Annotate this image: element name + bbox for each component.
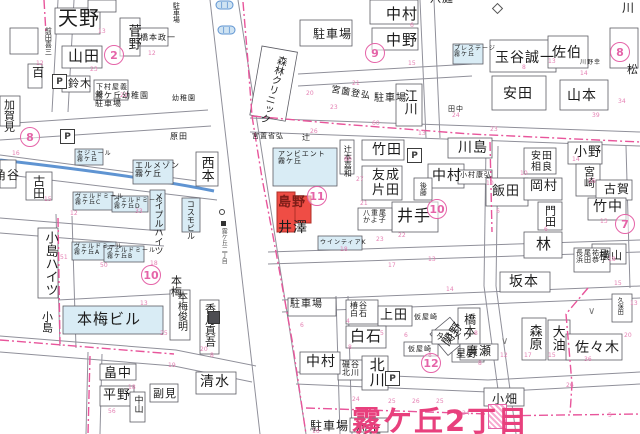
street-edge: [298, 76, 472, 86]
lot-number: 26: [310, 128, 318, 135]
parking-icon: P: [60, 129, 75, 144]
lot-number: 24: [452, 112, 460, 119]
map-label: 廣瀬: [466, 345, 492, 358]
parking-icon: P: [385, 371, 400, 386]
map-label: 小村康弘: [460, 172, 492, 179]
map-label: 安田 相良: [531, 152, 553, 173]
map-label: 後藤: [419, 182, 426, 196]
lot-number: 20: [306, 90, 314, 97]
lot-number: 15: [408, 60, 416, 67]
lot-number: 4: [346, 318, 350, 325]
map-label: 井澤: [278, 221, 308, 236]
parking-icon: P: [407, 148, 422, 163]
map-label: 安田: [503, 87, 533, 102]
footbridge-icon: [218, 26, 235, 34]
lot-number: 18: [150, 260, 158, 267]
circled-block-number: 10: [427, 199, 447, 219]
lot-number: 19: [168, 362, 176, 369]
map-label: 門田: [544, 205, 556, 227]
building: [10, 28, 38, 54]
lot-number: 17: [524, 352, 532, 359]
circled-block-number: 8: [610, 42, 630, 62]
road-square-icon: [221, 221, 226, 226]
vacant-lot-mark: ∨: [501, 336, 508, 347]
lot-number: 6: [300, 322, 304, 329]
map-label: 長尾祐司 浜田恭子: [576, 250, 608, 265]
footbridge-icons: [216, 1, 235, 34]
lot-number: 6: [544, 226, 548, 233]
circled-block-number: 9: [365, 43, 385, 63]
lot-number: 10: [486, 180, 494, 187]
map-label: 大油: [550, 325, 564, 351]
map-label: 中村: [306, 355, 336, 370]
map-label: 山本: [567, 89, 597, 104]
map-label: 角谷: [0, 169, 20, 182]
map-label: 江川: [402, 89, 416, 115]
map-label: 西本: [199, 156, 213, 182]
lot-number: 5: [608, 412, 612, 419]
circled-block-number: 11: [307, 186, 327, 206]
map-label: メイプルハイツ: [152, 192, 161, 255]
map-label: 佐々木: [575, 341, 620, 356]
lot-number: 34: [618, 98, 626, 105]
lot-number: 16: [12, 150, 20, 157]
map-label: 八重尾 かよ子: [363, 210, 387, 225]
map-label: プレステージ 霧ケ丘: [454, 46, 496, 59]
circled-block-number: 7: [615, 214, 635, 234]
lot-number: 20: [624, 332, 632, 339]
map-label: 竹中: [593, 200, 623, 215]
map-label: 原田: [170, 133, 188, 141]
map-label: 橋本政一: [140, 34, 176, 42]
lot-number: 8: [210, 352, 214, 359]
map-label: 清水: [200, 375, 230, 390]
map-label: 香月真吾: [204, 303, 216, 347]
map-label: 古田: [32, 175, 45, 199]
map-label: 加賀見: [3, 99, 15, 132]
map-label: 霧ケ丘二丁目: [220, 228, 226, 264]
map-label: 久保田: [616, 297, 622, 315]
map-label: 駐車場: [313, 28, 352, 41]
lot-number: 14: [572, 156, 580, 163]
street-edge: [210, 0, 260, 434]
street-edge: [0, 218, 162, 231]
map-label: 岡村: [530, 180, 558, 194]
lot-number: 14: [580, 70, 588, 77]
map-label: 中野: [386, 33, 418, 49]
lot-number: 22: [398, 232, 406, 239]
lot-number: 13: [630, 300, 638, 307]
lot-number: 5: [380, 330, 384, 337]
map-label: 辻: [302, 134, 311, 142]
lot-number: 8: [428, 352, 432, 359]
lot-number: 8: [474, 330, 478, 337]
circled-block-number: 2: [104, 45, 124, 65]
map-label: 井手: [397, 208, 431, 225]
lot-number: 60: [372, 120, 380, 127]
lot-number: 23: [490, 126, 498, 133]
lot-number: 51: [60, 254, 68, 261]
map-label: ヴェルドミール 霧ケ丘B: [107, 248, 156, 261]
lot-number: 13: [418, 130, 426, 137]
lot-number: 26: [566, 382, 574, 389]
lot-number: 6: [496, 208, 500, 215]
map-label: 百: [31, 66, 44, 78]
lot-number: 22: [120, 92, 128, 99]
lot-number: 21: [360, 200, 368, 207]
map-label: 本梅俊明: [175, 291, 186, 331]
map-label: コスモビル: [186, 200, 194, 240]
lot-number: 13: [428, 256, 436, 263]
diamond-icon: [493, 4, 503, 14]
map-label: 飯田: [492, 185, 520, 199]
vacant-lot-mark: ∨: [588, 306, 595, 317]
highlighted-building-label[interactable]: 島野: [278, 196, 306, 210]
lot-number: 6: [410, 22, 414, 29]
map-label: 川: [622, 2, 635, 15]
map-label: 駐車場: [172, 2, 179, 23]
street-edge: [0, 110, 208, 124]
map-label: 古賀: [604, 183, 630, 196]
map-label: 佐伯: [552, 46, 582, 61]
lot-number: 12: [36, 60, 44, 67]
lot-number: 18: [340, 246, 348, 253]
lot-number: 6: [404, 332, 408, 339]
circled-block-number: 10: [141, 265, 161, 285]
lot-number: 16: [588, 178, 596, 185]
zenrin-map-canvas[interactable]: 天野菅野山田鈴木百前田喜三下村屋義 雄橋本政一霧ケ丘幼稚園 駐車場加賀見角谷古田…: [0, 0, 640, 434]
lot-number: 56: [108, 408, 116, 415]
lot-number: 8: [348, 344, 352, 351]
lot-number: 80: [344, 156, 352, 163]
district-title: 霧ケ丘2丁目: [352, 398, 529, 434]
map-label: 竹田: [372, 143, 402, 158]
map-label: 副見: [153, 388, 177, 400]
map-label: セジュール 霧ケ丘: [77, 151, 112, 164]
lot-number: 17: [388, 262, 396, 269]
map-label: 菅野: [126, 24, 140, 50]
map-label: 磯谷 北川: [342, 361, 360, 378]
lot-number: 18: [608, 256, 616, 263]
road-dot-icon: [220, 210, 225, 215]
lot-number: 33: [135, 208, 143, 215]
street-edge: [86, 352, 88, 434]
lot-number: 50: [100, 262, 108, 269]
lot-number: 14: [446, 286, 454, 293]
shelter-icon: [208, 311, 220, 324]
lot-number: 39: [592, 112, 600, 119]
lot-number: 15: [548, 352, 556, 359]
map-label: 仮屋崎: [414, 314, 438, 321]
lot-number: 8: [478, 360, 482, 367]
map-label: 山田: [68, 49, 100, 65]
lot-number: 18: [128, 384, 136, 391]
map-label: 川野幸: [580, 60, 601, 66]
map-label: 本梅ビル: [77, 312, 141, 328]
lot-number: 12: [70, 210, 78, 217]
lot-number: 12: [500, 352, 508, 359]
lot-number: 23: [330, 104, 338, 111]
map-label: 松: [627, 64, 639, 76]
lot-number: 23: [376, 236, 384, 243]
lot-number: 13: [600, 218, 608, 225]
parking-icon: P: [52, 74, 67, 89]
lot-number: 15: [44, 196, 52, 203]
map-label: 畠中: [104, 367, 132, 381]
map-label: 駐車場: [290, 300, 323, 311]
map-label: 中村: [432, 169, 462, 184]
lot-number: 10: [520, 170, 528, 177]
map-label: 鈴木: [68, 78, 92, 90]
district-boundary: [243, 2, 252, 116]
map-label: 上田: [380, 309, 408, 323]
map-label: 椿谷 白石: [350, 302, 368, 319]
map-label: 片田: [372, 184, 400, 198]
map-label: 前田喜三: [44, 27, 51, 55]
lot-number: 13: [548, 58, 556, 65]
street-edge: [484, 146, 486, 286]
lot-number: 20: [200, 346, 208, 353]
map-label: 林: [536, 237, 552, 253]
district-boundary: [0, 340, 174, 354]
lot-number: 27: [356, 176, 364, 183]
street-edge: [250, 118, 640, 132]
map-label: 平野: [103, 389, 131, 403]
lot-number: 23: [90, 66, 98, 73]
lot-number: 25: [160, 330, 168, 337]
map-label: 幼稚園: [172, 95, 196, 102]
map-label: 白石: [350, 329, 382, 345]
map-label: 中山: [132, 395, 141, 413]
district-boundary: [88, 356, 90, 434]
lot-number: 36: [584, 356, 592, 363]
map-label: アンビエント 霧ケ丘: [278, 151, 326, 166]
lot-number: 15: [614, 280, 622, 287]
map-label: 友成: [372, 169, 400, 183]
map-label: 中村: [386, 7, 418, 23]
street-edge: [496, 146, 498, 286]
lot-number: 16: [312, 428, 320, 434]
map-label: 八庭: [430, 0, 454, 5]
map-label: 宮置省弘: [252, 133, 284, 140]
lot-number: 8: [522, 64, 526, 71]
map-label: 坂本: [509, 275, 539, 290]
footbridge-icon: [216, 1, 233, 9]
lot-number: 21: [352, 80, 360, 87]
map-label: 小島ハイツ: [43, 231, 57, 296]
street-edge: [298, 64, 472, 74]
street-edge: [488, 372, 640, 380]
map-label: 森原: [527, 324, 541, 350]
street-edge: [434, 0, 440, 138]
map-label: 天野: [58, 8, 100, 29]
map-label: 北川: [368, 357, 384, 387]
circled-block-number: 8: [20, 127, 40, 147]
lot-number: 12: [148, 50, 156, 57]
map-label: エルメゾン 霧ケ丘: [135, 162, 180, 179]
map-label: 川島: [458, 141, 488, 156]
lot-number: 13: [140, 300, 148, 307]
lot-number: 13: [98, 28, 106, 35]
map-label: 小島: [41, 311, 53, 333]
